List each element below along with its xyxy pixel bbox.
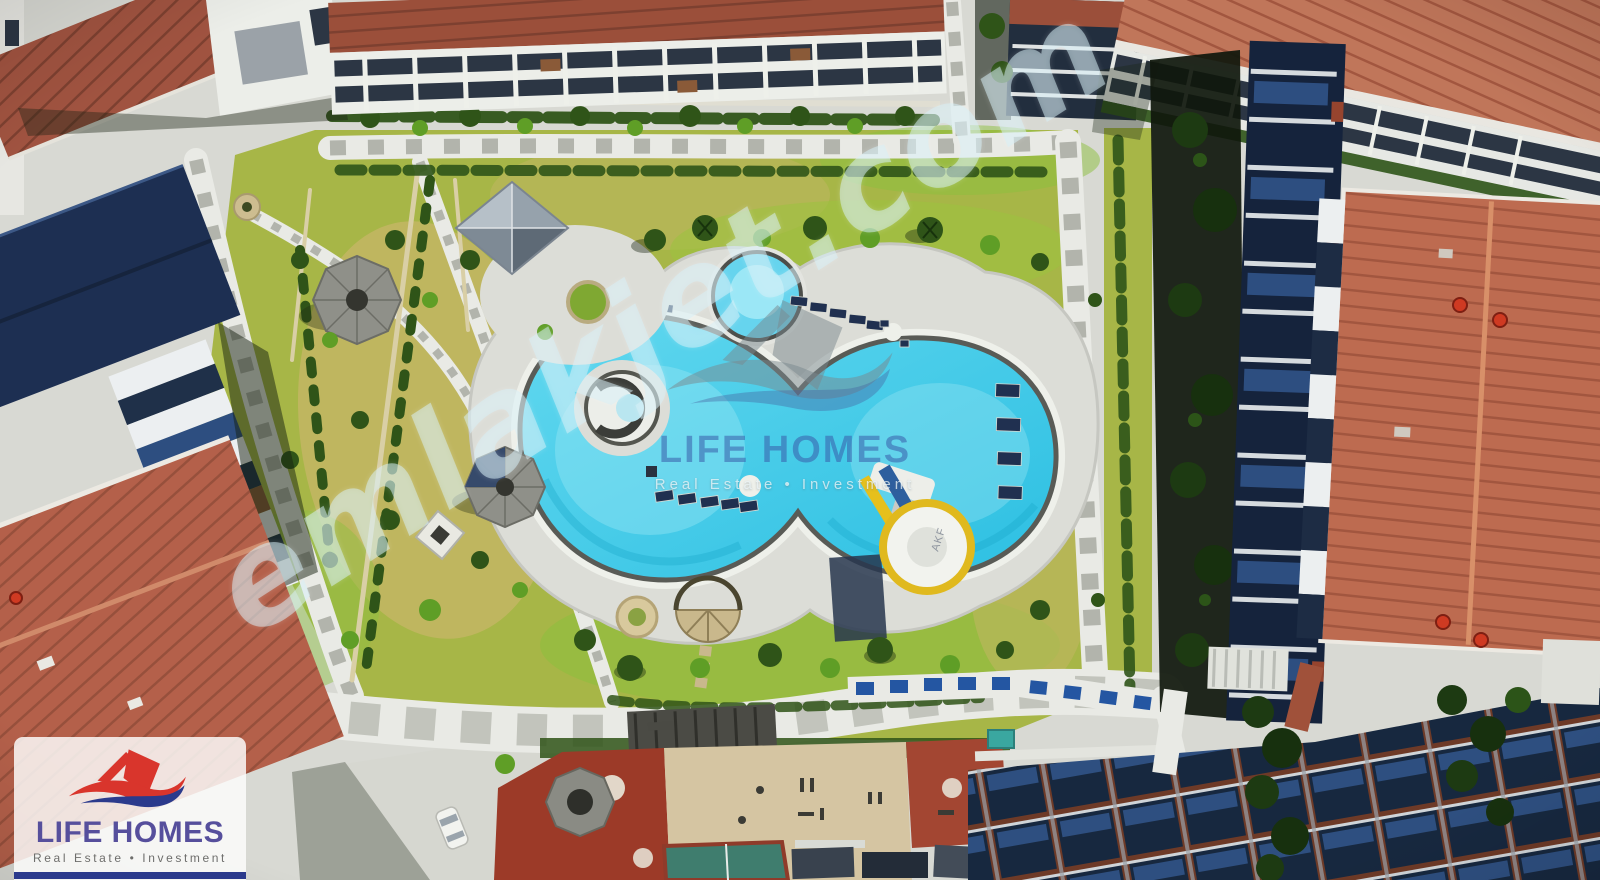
agency-logo-tagline: Real Estate • Investment: [14, 851, 246, 865]
agency-logo-box: LIFE HOMES Real Estate • Investment: [14, 737, 246, 880]
agency-logo-brand: LIFE HOMES: [14, 818, 246, 848]
agency-logo-bar: [14, 872, 246, 879]
aerial-photo-residential-complex: AKF: [0, 0, 1600, 880]
agency-logo-icon: [40, 739, 220, 817]
